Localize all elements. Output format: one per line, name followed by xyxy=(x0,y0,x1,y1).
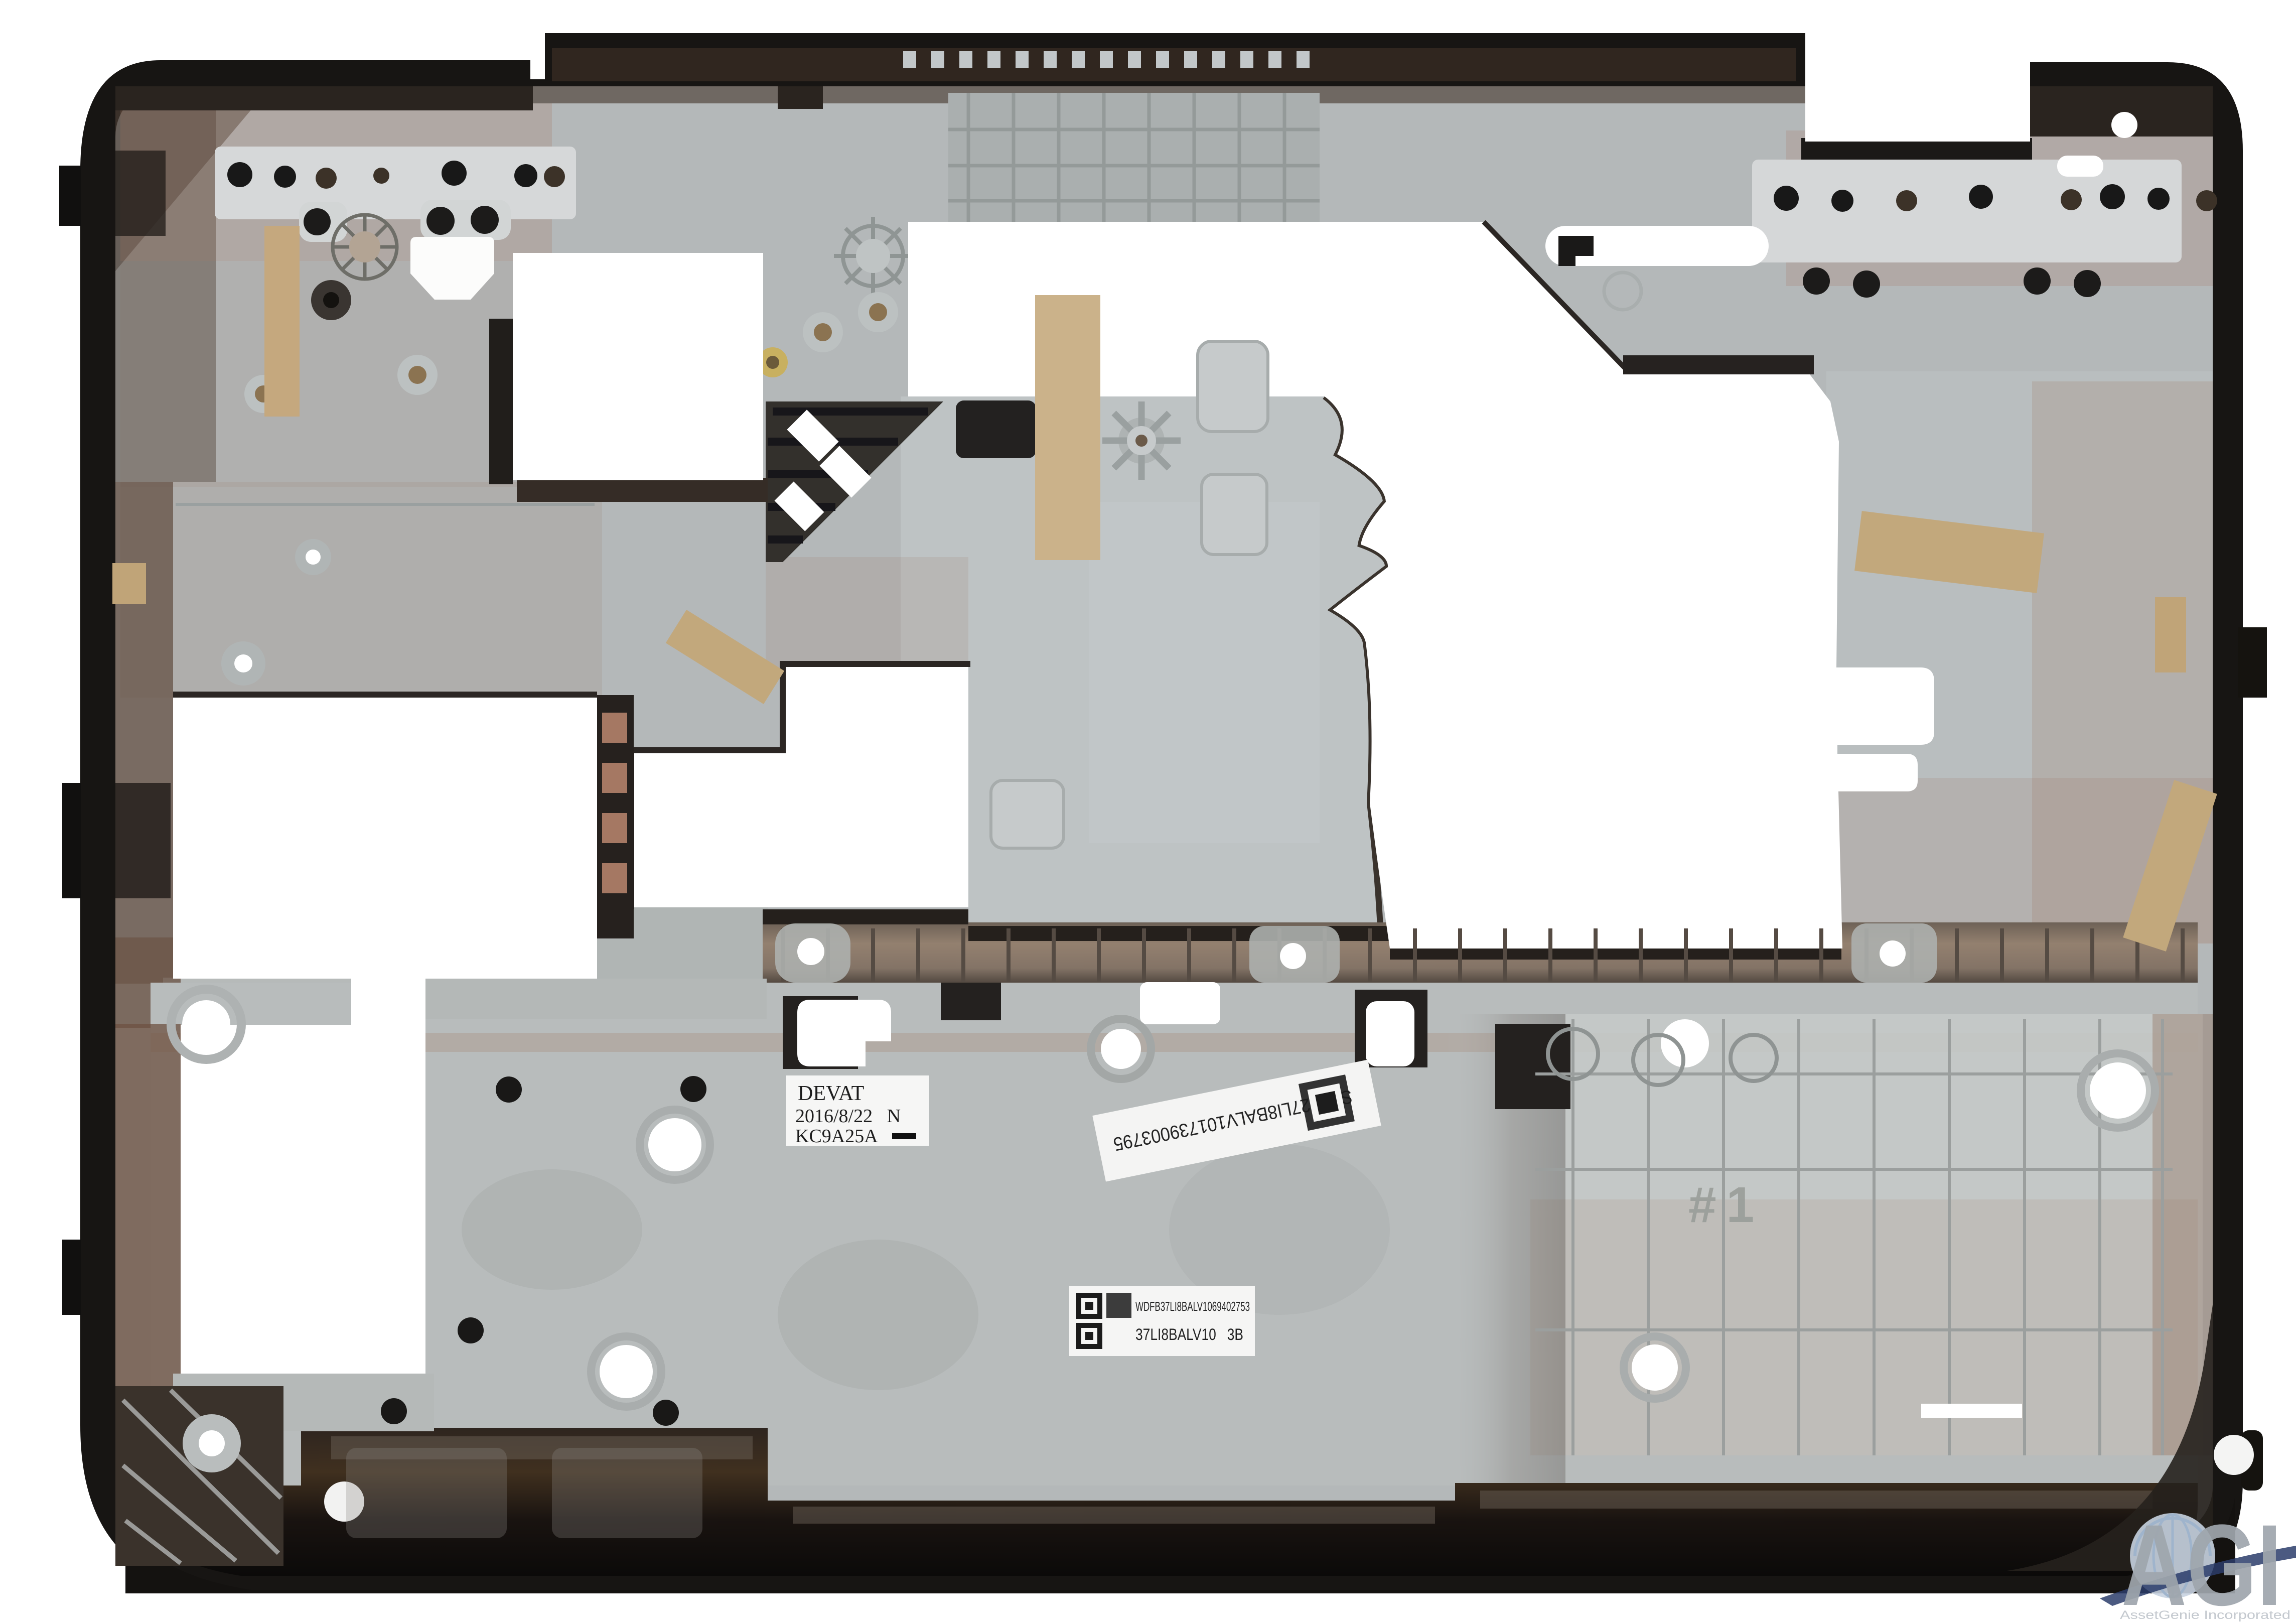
svg-text:WDFB37LI8BALV1069402753: WDFB37LI8BALV1069402753 xyxy=(1135,1299,1250,1314)
svg-text:AssetGenie Incorporated: AssetGenie Incorporated xyxy=(2120,1608,2290,1622)
svg-text:DEVAT: DEVAT xyxy=(798,1082,864,1105)
svg-text:AGI: AGI xyxy=(2121,1501,2282,1622)
svg-text:# 1: # 1 xyxy=(1688,1177,1754,1233)
svg-text:2016/8/22 N: 2016/8/22 N xyxy=(795,1106,901,1127)
svg-text:37LI8BALV10 3B: 37LI8BALV10 3B xyxy=(1135,1325,1243,1343)
svg-text:KC9A25A: KC9A25A xyxy=(795,1126,878,1147)
